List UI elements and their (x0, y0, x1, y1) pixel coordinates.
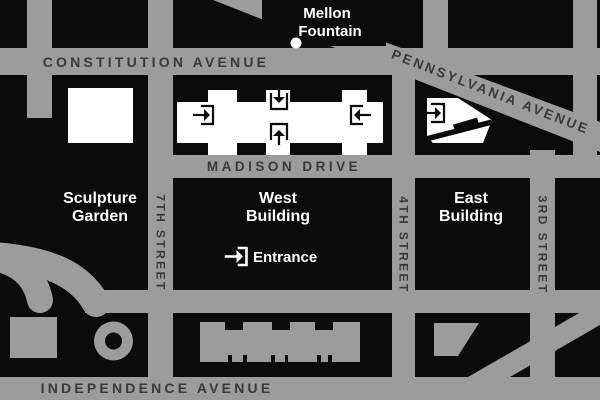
label-entrance: Entrance (253, 249, 317, 266)
building-ring-hole (105, 333, 122, 350)
label-3rd-street: 3RD STREET (536, 196, 550, 295)
block (52, 0, 148, 48)
building-rect-southwest (10, 317, 57, 358)
label-sculpture-line1: Sculpture (63, 190, 137, 207)
west-right-pavilion (342, 90, 367, 155)
label-7th-street: 7TH STREET (154, 194, 168, 291)
street-map: CONSTITUTION AVENUE MADISON DRIVE INDEPE… (0, 0, 600, 400)
label-constitution-avenue: CONSTITUTION AVENUE (43, 54, 269, 70)
block (0, 0, 27, 48)
label-mellon-line2: Fountain (298, 23, 361, 40)
label-sculpture-line2: Garden (72, 208, 128, 225)
label-madison-drive: MADISON DRIVE (207, 159, 361, 174)
label-west-line1: West (259, 190, 298, 207)
map-canvas: CONSTITUTION AVENUE MADISON DRIVE INDEPE… (0, 0, 600, 400)
label-independence-avenue: INDEPENDENCE AVENUE (41, 380, 274, 396)
label-east-line2: Building (439, 208, 503, 225)
label-west-line2: Building (246, 208, 310, 225)
building-square-northwest (68, 88, 133, 143)
label-mellon-line1: Mellon (303, 5, 351, 22)
street-4th-north (423, 0, 448, 48)
label-4th-street: 4TH STREET (397, 196, 411, 293)
block (555, 178, 600, 290)
label-east-line1: East (454, 190, 488, 207)
